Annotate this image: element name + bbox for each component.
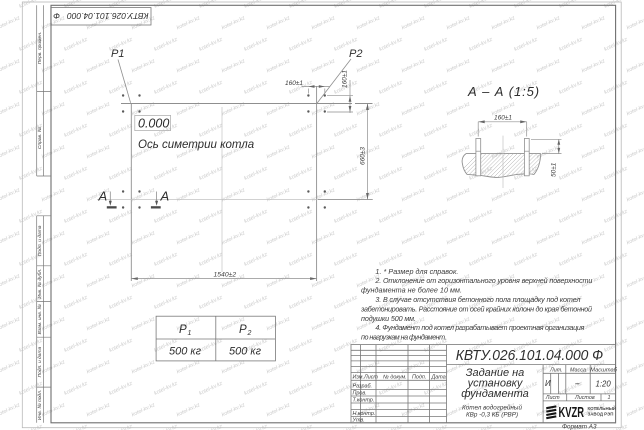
svg-text:Т.контр.: Т.контр.: [353, 398, 375, 404]
svg-text:А: А: [98, 189, 108, 204]
svg-text:160±1: 160±1: [494, 114, 512, 121]
svg-text:А – А (1:5): А – А (1:5): [467, 84, 540, 99]
svg-text:Дата: Дата: [431, 375, 446, 381]
svg-text:Перв. примен.: Перв. примен.: [37, 32, 43, 65]
svg-text:Справ. №: Справ. №: [37, 127, 43, 149]
svg-text:500 кг: 500 кг: [229, 345, 262, 357]
svg-text:Масса: Масса: [570, 368, 586, 374]
svg-text:И: И: [545, 379, 551, 388]
svg-text:Р: Р: [179, 324, 187, 336]
svg-text:Пров.: Пров.: [353, 391, 367, 397]
svg-text:1540±2: 1540±2: [214, 271, 237, 278]
svg-text:Подп. и дата: Подп. и дата: [37, 225, 43, 256]
svg-text:подушки 500 мм.: подушки 500 мм.: [361, 314, 416, 323]
svg-text:2. Отклонение от горизонтальн: 2. Отклонение от горизонтального уровня …: [374, 276, 592, 285]
svg-text:1: 1: [188, 330, 192, 337]
svg-text:0.000: 0.000: [138, 117, 169, 131]
svg-text:фундамента не более 10 мм.: фундамента не более 10 мм.: [361, 286, 462, 295]
svg-text:КВТУ.026.101.04.000 Ф: КВТУ.026.101.04.000 Ф: [456, 348, 604, 364]
svg-text:ЗАВОД РЭП: ЗАВОД РЭП: [588, 412, 614, 417]
svg-text:50±1: 50±1: [551, 162, 558, 177]
svg-text:Р: Р: [239, 324, 247, 336]
svg-text:4. Фундамент под котел разраб: 4. Фундамент под котел разрабатывает про…: [375, 323, 584, 332]
svg-text:–: –: [574, 379, 580, 388]
svg-text:№ докум.: № докум.: [383, 375, 407, 381]
svg-text:Масштаб: Масштаб: [590, 368, 617, 374]
svg-text:КВТУ.026.101.04.000 Ф: КВТУ.026.101.04.000 Ф: [53, 11, 149, 21]
svg-text:P1: P1: [111, 48, 124, 60]
svg-text:Лист: Лист: [545, 395, 560, 401]
svg-text:Ось симетрии котла: Ось симетрии котла: [138, 139, 254, 151]
svg-text:Утв.: Утв.: [352, 418, 365, 424]
svg-text:Подп.: Подп.: [412, 375, 426, 381]
svg-text:Взам. инв. №: Взам. инв. №: [37, 304, 43, 334]
svg-text:Листов: Листов: [574, 395, 595, 401]
svg-text:160±1: 160±1: [285, 80, 303, 87]
svg-text:Подп. и дата: Подп. и дата: [37, 347, 43, 378]
svg-text:1: 1: [608, 395, 611, 401]
svg-text:Инв. № подл.: Инв. № подл.: [37, 390, 43, 420]
svg-text:Формат А3: Формат А3: [562, 423, 597, 430]
svg-text:А: А: [160, 189, 170, 204]
svg-text:2: 2: [247, 330, 252, 337]
svg-text:по нагрузкам на фундамент.: по нагрузкам на фундамент.: [361, 333, 447, 342]
svg-text:Н.контр.: Н.контр.: [353, 411, 376, 417]
svg-text:660±3: 660±3: [360, 147, 367, 165]
svg-text:Котел водогрейный: Котел водогрейный: [462, 404, 522, 412]
svg-text:P2: P2: [349, 48, 362, 60]
svg-text:КВр -0,3 КБ (РВР): КВр -0,3 КБ (РВР): [466, 412, 518, 419]
svg-text:160±1: 160±1: [342, 70, 349, 88]
svg-text:Разраб.: Разраб.: [353, 384, 373, 390]
svg-text:Инв. № дубл.: Инв. № дубл.: [37, 269, 43, 299]
svg-text:КОТЕЛЬНЫЙ: КОТЕЛЬНЫЙ: [588, 406, 617, 411]
svg-text:забетонировать. Расстояние от: забетонировать. Расстояние от осей крайн…: [360, 304, 592, 313]
svg-text:3. В случае отсутствия бетонн: 3. В случае отсутствия бетонного пола пл…: [375, 295, 580, 304]
svg-text:1. * Размер для справок.: 1. * Размер для справок.: [375, 267, 458, 276]
svg-text:фундамента: фундамента: [461, 388, 529, 400]
svg-text:1:20: 1:20: [596, 380, 612, 389]
svg-text:500 кг: 500 кг: [169, 345, 202, 357]
svg-text:Лит.: Лит.: [549, 368, 563, 374]
svg-text:Изм.Лист: Изм.Лист: [353, 375, 379, 381]
svg-text:KVZR: KVZR: [559, 404, 585, 421]
